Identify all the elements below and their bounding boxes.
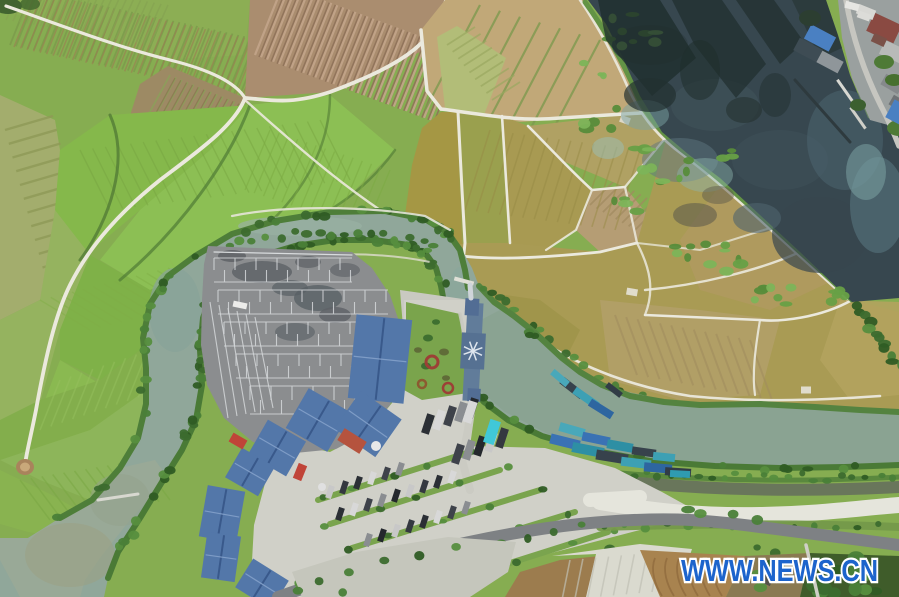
svg-text:WWW.NEWS.CN: WWW.NEWS.CN	[681, 553, 878, 588]
